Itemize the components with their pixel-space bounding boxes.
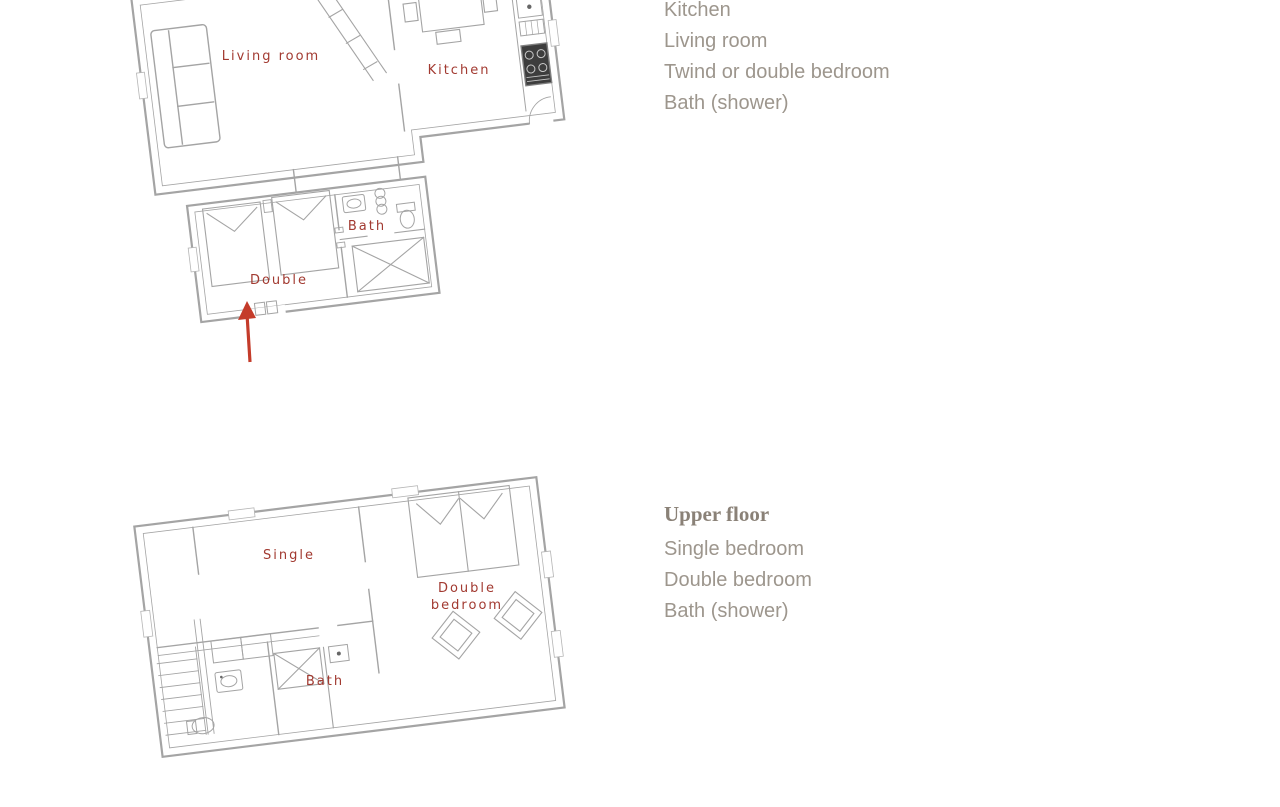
legend-item: Single bedroom	[664, 534, 812, 565]
stove-icon	[521, 43, 552, 86]
ground-floor-legend: Kitchen Living room Twind or double bedr…	[664, 0, 890, 119]
closet-icon	[211, 637, 243, 662]
water-heater-icon	[374, 188, 387, 215]
ground-floor-plan-drawing	[61, 0, 634, 428]
door-jamb	[337, 242, 346, 248]
sink-icon	[513, 0, 544, 36]
sofa-icon	[150, 24, 220, 148]
staircase-icon	[306, 0, 387, 87]
legend-item: Living room	[664, 26, 890, 57]
stairs-icon	[156, 647, 206, 739]
single-room-wall-line	[158, 636, 319, 656]
wc-icon	[328, 644, 349, 662]
wall-stub	[193, 527, 199, 574]
label-double-bedroom-line1: Double	[431, 580, 503, 597]
entrance-arrow-icon	[234, 300, 264, 366]
kitchen-divider-wall	[385, 0, 404, 131]
label-single: Single	[263, 547, 315, 564]
toilet-icon	[396, 202, 417, 229]
upper-floor-heading: Upper floor	[664, 502, 769, 527]
label-double: Double	[250, 272, 308, 289]
washbasin-icon	[342, 194, 366, 213]
wing-outer-wall	[187, 177, 439, 322]
legend-item: Twind or double bedroom	[664, 57, 890, 88]
label-bath-ground: Bath	[348, 218, 386, 235]
label-kitchen: Kitchen	[428, 62, 491, 79]
armchair-icon	[429, 608, 482, 661]
outer-wall	[131, 0, 567, 195]
legend-item: Kitchen	[664, 0, 890, 26]
dining-table-icon	[399, 0, 501, 48]
upper-floor-legend: Single bedroom Double bedroom Bath (show…	[664, 534, 812, 627]
corridor-wall	[293, 170, 296, 193]
upper-floor-plan-drawing	[72, 443, 645, 807]
label-double-bedroom: Double bedroom	[431, 580, 503, 614]
label-double-bedroom-line2: bedroom	[431, 597, 503, 614]
bedside-table-icon	[263, 200, 272, 213]
corridor-wall	[398, 157, 401, 180]
label-living-room: Living room	[222, 48, 320, 65]
label-bath-upper: Bath	[306, 673, 344, 690]
shower-icon	[352, 237, 429, 291]
door-gap	[529, 116, 554, 129]
legend-item: Bath (shower)	[664, 88, 890, 119]
bed-icon	[272, 190, 339, 274]
ground-floor-plan	[88, 0, 608, 398]
inner-wall-line	[140, 0, 558, 186]
outer-wall	[134, 477, 564, 757]
bedroom-divider-wall	[359, 507, 379, 673]
legend-item: Bath (shower)	[664, 596, 812, 627]
upper-floor-plan	[88, 475, 628, 775]
washbasin-icon	[215, 670, 243, 693]
legend-item: Double bedroom	[664, 565, 812, 596]
